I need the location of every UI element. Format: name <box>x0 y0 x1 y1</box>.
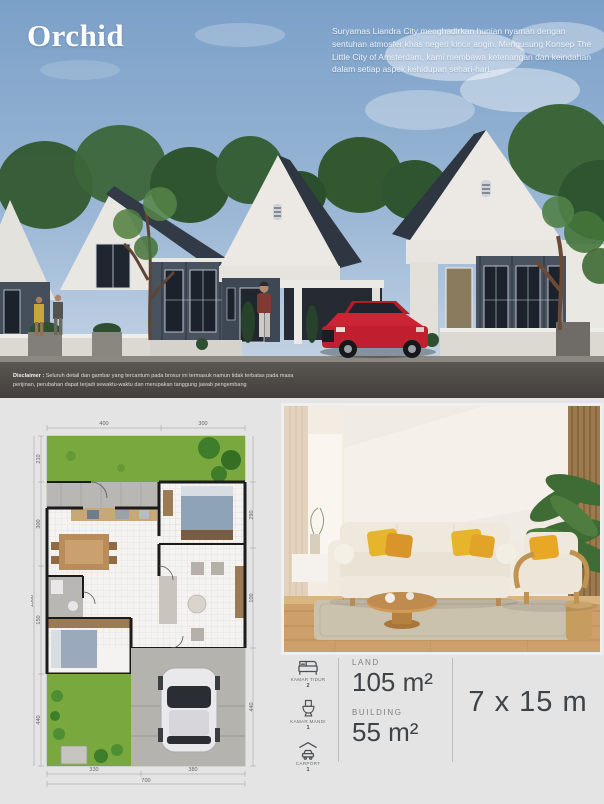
brand-logo: Orchid <box>27 18 124 54</box>
feature-value: 1 <box>306 767 309 773</box>
garden-top <box>47 436 245 482</box>
land-label: LAND <box>352 658 448 667</box>
area-specs: LAND 105 m² BUILDING 55 m² <box>352 658 448 758</box>
dining-area <box>51 534 117 570</box>
feature-bedrooms: KAMAR TIDUR 2 <box>291 656 326 689</box>
feature-label: KAMAR MANDI <box>290 719 326 724</box>
svg-text:700: 700 <box>141 778 150 784</box>
feature-label: KAMAR TIDUR <box>291 677 326 682</box>
svg-text:330: 330 <box>89 767 98 773</box>
divider-left <box>338 658 339 762</box>
plan-car <box>158 668 220 752</box>
disclaimer-line2: perijinan, perubahan dapat terjadi sewak… <box>13 382 247 388</box>
svg-text:380: 380 <box>188 767 197 773</box>
feature-label: CARPORT <box>296 761 320 766</box>
interior-photo <box>284 406 600 652</box>
hero-description: Suryamas Liandra City menghadirkan hunia… <box>332 25 596 76</box>
svg-text:300: 300 <box>36 519 42 528</box>
carport-icon <box>297 740 319 760</box>
hero-section: Orchid Suryamas Liandra City menghadirka… <box>0 0 604 398</box>
floor-plan: 400 300 330 380 700 210 300 150 440 1500… <box>31 416 265 796</box>
interior-render <box>284 406 600 652</box>
svg-text:300: 300 <box>198 421 207 427</box>
disclaimer: Disclaimer : Seluruh detail dan gambar y… <box>13 372 433 390</box>
svg-text:210: 210 <box>36 454 42 463</box>
svg-text:150: 150 <box>36 615 42 624</box>
svg-text:100: 100 <box>249 593 255 602</box>
plot-size: 7 x 15 m <box>456 686 600 719</box>
divider-right <box>452 658 453 762</box>
feature-bathrooms: KAMAR MANDI 1 <box>290 698 326 731</box>
building-label: BUILDING <box>352 708 448 717</box>
svg-text:440: 440 <box>36 715 42 724</box>
garden-bottom <box>47 674 131 766</box>
feature-value: 1 <box>306 725 309 731</box>
svg-text:290: 290 <box>249 510 255 519</box>
bathroom <box>47 576 83 618</box>
feature-carport: CARPORT 1 <box>296 740 320 773</box>
land-value: 105 m² <box>352 668 448 698</box>
svg-text:400: 400 <box>99 421 108 427</box>
bath-icon <box>298 698 318 718</box>
svg-text:440: 440 <box>249 702 255 711</box>
kitchen <box>71 508 157 521</box>
terrace <box>47 482 159 508</box>
brochure-page: Orchid Suryamas Liandra City menghadirka… <box>0 0 604 804</box>
bed-icon <box>297 656 319 676</box>
svg-text:1500: 1500 <box>31 595 35 607</box>
lower-section: 400 300 330 380 700 210 300 150 440 1500… <box>0 398 604 804</box>
feature-value: 2 <box>306 683 309 689</box>
disclaimer-label: Disclaimer : <box>13 373 44 379</box>
features-list: KAMAR TIDUR 2 KAMAR MANDI 1 <box>283 656 333 773</box>
building-value: 55 m² <box>352 718 448 748</box>
disclaimer-line1: Seluruh detail dan gambar yang tercantum… <box>46 373 294 379</box>
